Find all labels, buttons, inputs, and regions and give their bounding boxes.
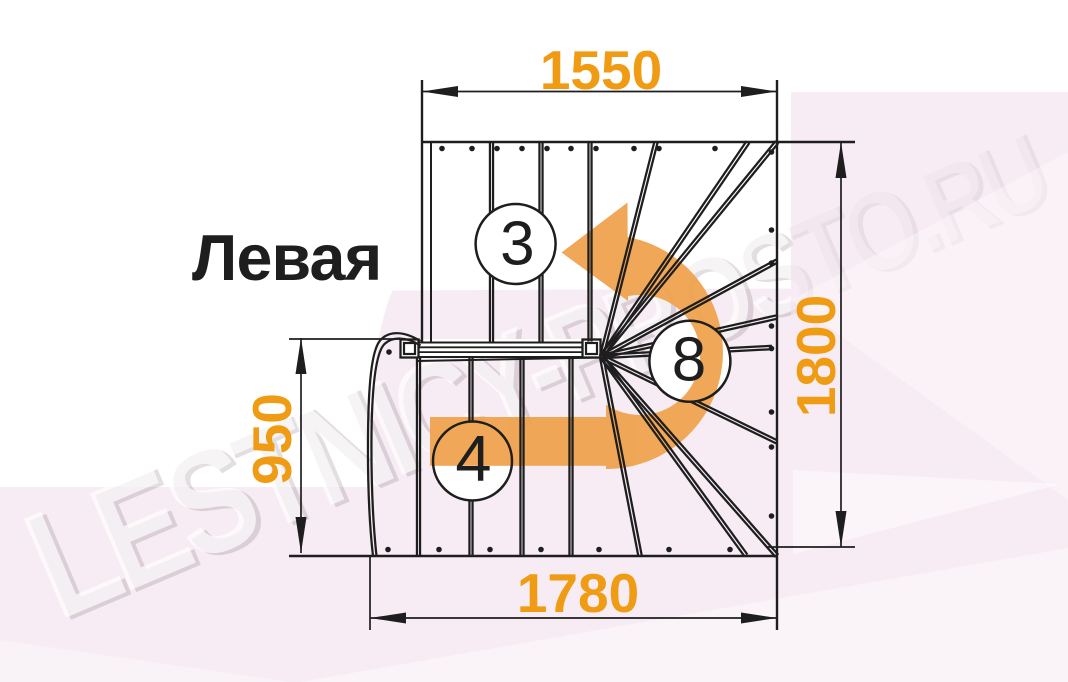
svg-text:3: 3 — [500, 210, 534, 279]
svg-text:4: 4 — [455, 422, 491, 495]
svg-text:1800: 1800 — [785, 295, 847, 417]
svg-text:Левая: Левая — [192, 222, 381, 294]
svg-text:8: 8 — [672, 326, 706, 395]
svg-text:1780: 1780 — [517, 562, 639, 624]
svg-text:1550: 1550 — [540, 39, 662, 101]
svg-text:950: 950 — [241, 393, 303, 485]
